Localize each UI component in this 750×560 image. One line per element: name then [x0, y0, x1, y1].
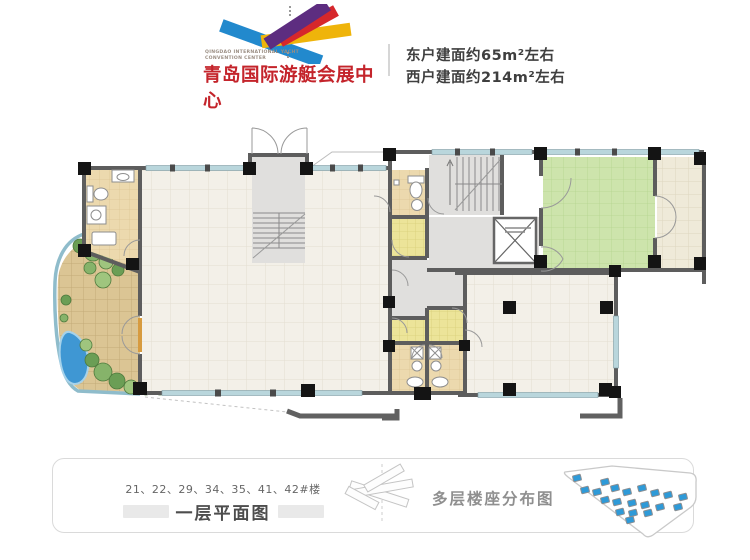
exterior-step-right [580, 398, 620, 416]
footer-distribution-title: 多层楼座分布图 [432, 487, 555, 509]
yellow-room-left-floor [392, 320, 425, 343]
site-map [550, 455, 710, 547]
site-building-marker [627, 499, 636, 507]
footer-caption: 21、22、29、34、35、41、42#楼 一层平面图 [88, 481, 358, 524]
site-building-marker [643, 509, 652, 517]
site-building-marker [637, 484, 646, 492]
stairwell-right-floor [429, 155, 502, 215]
header-divider [388, 44, 390, 76]
patio-door-panel [138, 318, 142, 352]
footer-buildings-line: 21、22、29、34、35、41、42#楼 [88, 481, 358, 497]
site-building-marker [655, 503, 664, 511]
bottom-room-floor [467, 275, 614, 393]
site-building-marker [615, 508, 624, 516]
site-building-marker [612, 498, 621, 506]
site-building-marker [592, 488, 601, 496]
site-step-dashed-line [145, 397, 287, 412]
site-building-marker [610, 484, 619, 492]
footer-logo-sketch [335, 460, 430, 528]
site-building-marker [572, 474, 581, 482]
canopy-outline [311, 152, 390, 167]
exterior-ramp-wall [287, 411, 396, 416]
logo-chinese-title: 青岛国际游艇会展中心 [203, 61, 381, 113]
yellow-room-right-floor [429, 310, 465, 343]
redacted-block [123, 505, 169, 518]
site-building-marker [640, 501, 649, 509]
area-info: 东户建面约65m²左右 西户建面约214m²左右 [406, 45, 565, 90]
site-building-marker [580, 486, 589, 494]
site-building-marker [600, 496, 609, 504]
site-building-marker [650, 489, 659, 497]
west-area-line: 西户建面约214m²左右 [406, 67, 565, 89]
terrace-floor [657, 157, 702, 268]
elevator [494, 218, 536, 263]
green-room-floor [543, 157, 655, 268]
east-area-line: 东户建面约65m²左右 [406, 45, 565, 67]
redacted-block [278, 505, 324, 518]
site-building-marker [622, 488, 631, 496]
site-building-marker [628, 509, 637, 517]
site-building-marker [600, 478, 609, 486]
footer-plan-title: 一层平面图 [176, 499, 271, 524]
site-building-marker [625, 516, 634, 524]
site-building-marker [673, 503, 682, 511]
site-building-marker [663, 491, 672, 499]
site-building-marker [678, 493, 687, 501]
kitchen-floor [392, 219, 427, 257]
